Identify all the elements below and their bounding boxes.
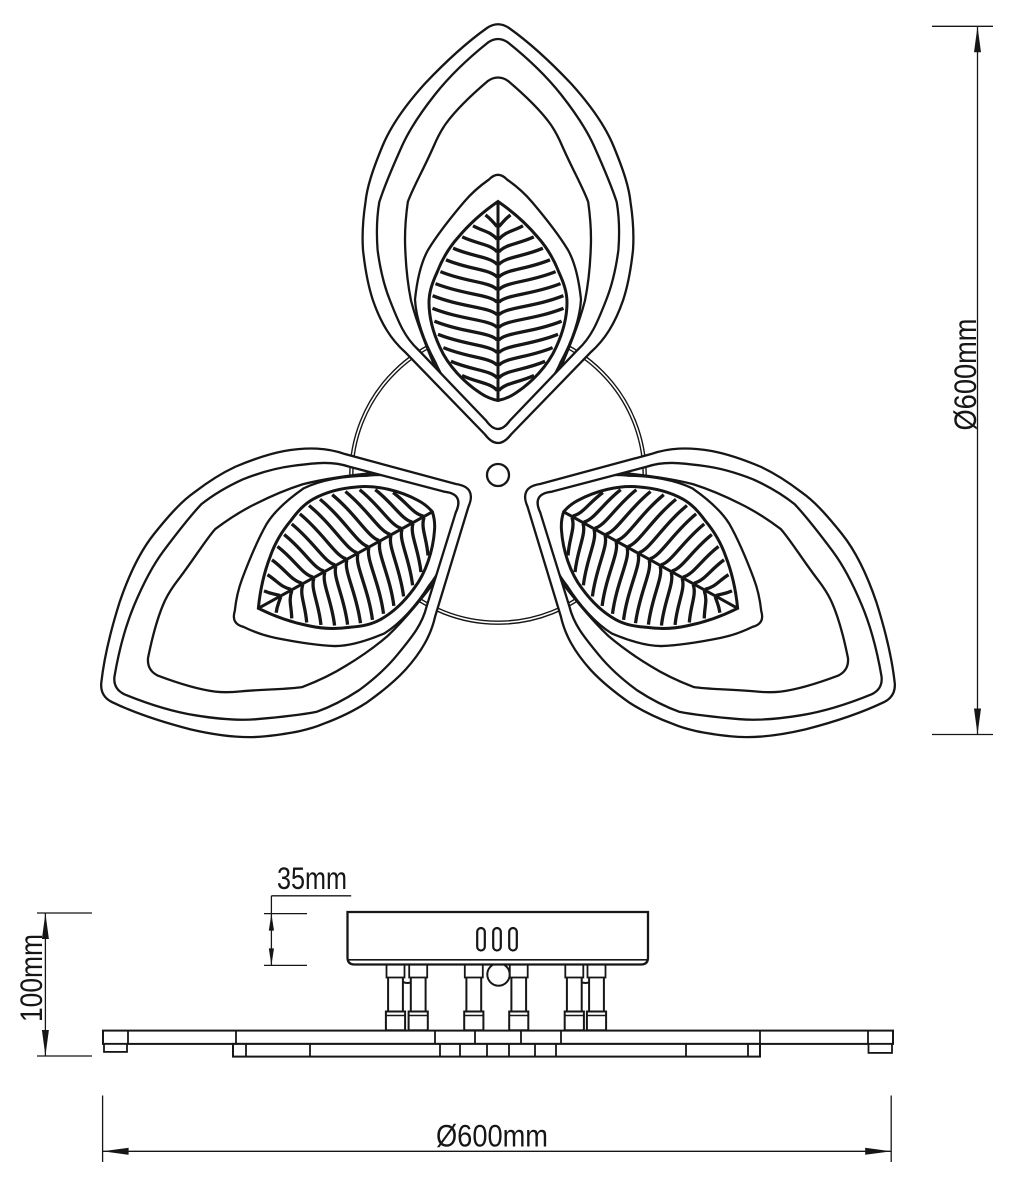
svg-text:35mm: 35mm [277, 860, 347, 896]
svg-text:100mm: 100mm [13, 934, 49, 1022]
svg-text:Ø600mm: Ø600mm [436, 1118, 548, 1154]
svg-text:Ø600mm: Ø600mm [947, 319, 983, 431]
